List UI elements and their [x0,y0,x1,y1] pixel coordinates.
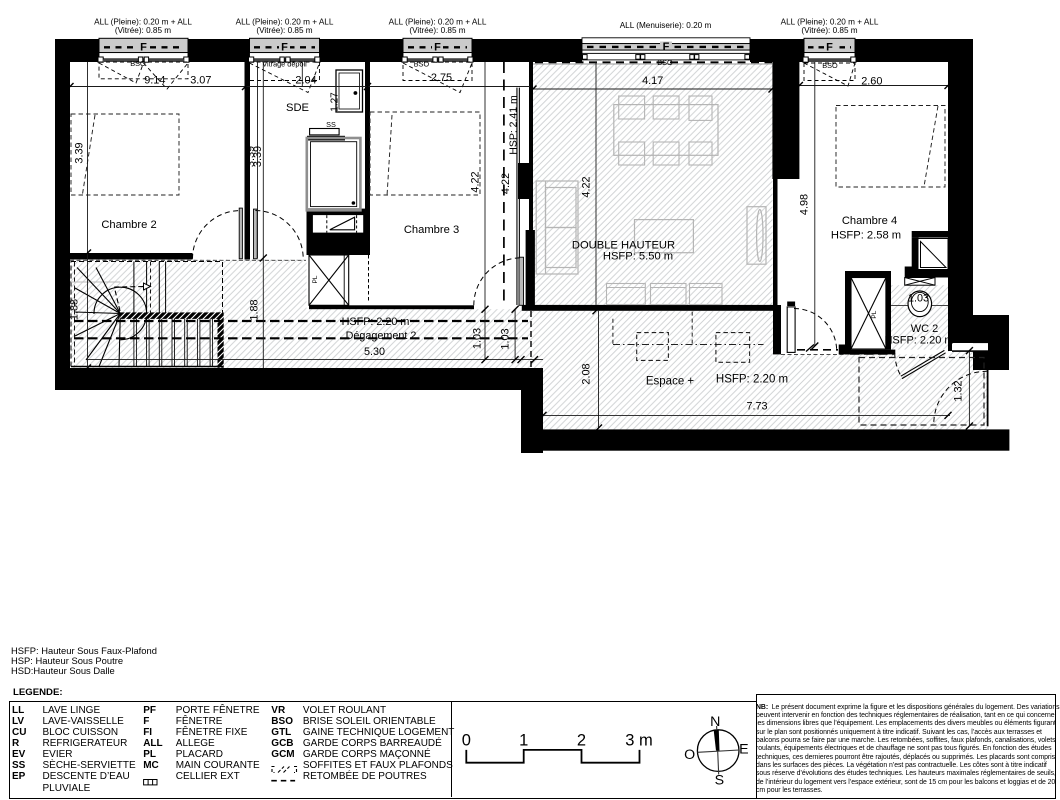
svg-text:F: F [281,42,288,54]
svg-text:PL: PL [871,310,878,318]
svg-text:E: E [739,741,748,757]
svg-text:2.08: 2.08 [581,363,593,384]
svg-text:3.07: 3.07 [190,75,211,87]
svg-text:PL: PL [312,275,319,283]
svg-text:5.30: 5.30 [364,346,385,358]
svg-text:3.39: 3.39 [252,146,264,167]
svg-text:SS: SS [326,120,336,129]
svg-text:4.22: 4.22 [470,171,482,192]
svg-text:2.75: 2.75 [431,72,452,84]
svg-text:Chambre 3: Chambre 3 [404,224,459,236]
svg-text:1.32: 1.32 [953,380,965,401]
svg-text:1.88: 1.88 [69,299,81,320]
svg-text:1.03: 1.03 [500,328,512,349]
svg-text:1: 1 [519,732,528,750]
svg-text:N: N [710,714,720,730]
svg-text:(Vitrée): 0.85 m: (Vitrée): 0.85 m [409,26,465,35]
svg-text:Vitrage dépoli: Vitrage dépoli [262,59,307,68]
svg-text:9.14: 9.14 [144,75,165,87]
svg-text:4.17: 4.17 [642,75,663,87]
svg-text:2.04: 2.04 [295,75,316,87]
svg-text:2: 2 [577,732,586,750]
svg-text:3 m: 3 m [625,732,653,750]
svg-text:1.88: 1.88 [249,299,261,320]
svg-text:HSFP: 5.50 m: HSFP: 5.50 m [603,250,673,262]
svg-text:HSFP: 2.20 m: HSFP: 2.20 m [716,373,788,385]
svg-text:Espace +: Espace + [646,375,695,387]
svg-text:F: F [663,41,670,53]
svg-text:HSFP: 2.20 m: HSFP: 2.20 m [884,334,953,346]
svg-text:4.22: 4.22 [581,176,593,197]
svg-text:3.39: 3.39 [74,142,86,163]
svg-text:Chambre 2: Chambre 2 [101,219,156,231]
svg-text:SDE: SDE [286,102,309,114]
svg-text:0: 0 [462,732,471,750]
svg-text:7.73: 7.73 [746,400,767,412]
svg-text:Chambre 4: Chambre 4 [842,215,897,227]
svg-text:1.27: 1.27 [330,92,341,112]
svg-text:1.03: 1.03 [908,292,929,304]
svg-text:(Vitrée): 0.85 m: (Vitrée): 0.85 m [801,26,857,35]
svg-text:HSFP: 2.20 m: HSFP: 2.20 m [342,316,410,328]
svg-text:BSO: BSO [130,59,146,68]
svg-text:BSO: BSO [657,58,673,67]
svg-text:2.60: 2.60 [861,76,882,88]
svg-text:BSO: BSO [414,59,430,68]
svg-text:Dégagement 2: Dégagement 2 [346,330,417,342]
svg-text:S: S [715,772,724,788]
svg-text:4.22: 4.22 [500,173,512,194]
svg-text:BSO: BSO [822,61,838,70]
svg-text:(Vitrée): 0.85 m: (Vitrée): 0.85 m [256,26,312,35]
svg-text:4.98: 4.98 [799,194,811,215]
svg-text:(Vitrée): 0.85 m: (Vitrée): 0.85 m [115,26,171,35]
svg-text:1.03: 1.03 [472,328,484,349]
svg-text:F: F [140,42,147,54]
svg-text:F: F [826,42,833,54]
svg-text:ALL (Menuiserie): 0.20 m: ALL (Menuiserie): 0.20 m [620,21,712,30]
svg-text:F: F [434,42,441,54]
svg-text:HSFP: 2.58 m: HSFP: 2.58 m [831,229,901,241]
svg-text:O: O [684,747,695,763]
svg-text:HSP: 2.41 m: HSP: 2.41 m [508,95,520,155]
svg-text:WC 2: WC 2 [911,323,939,335]
